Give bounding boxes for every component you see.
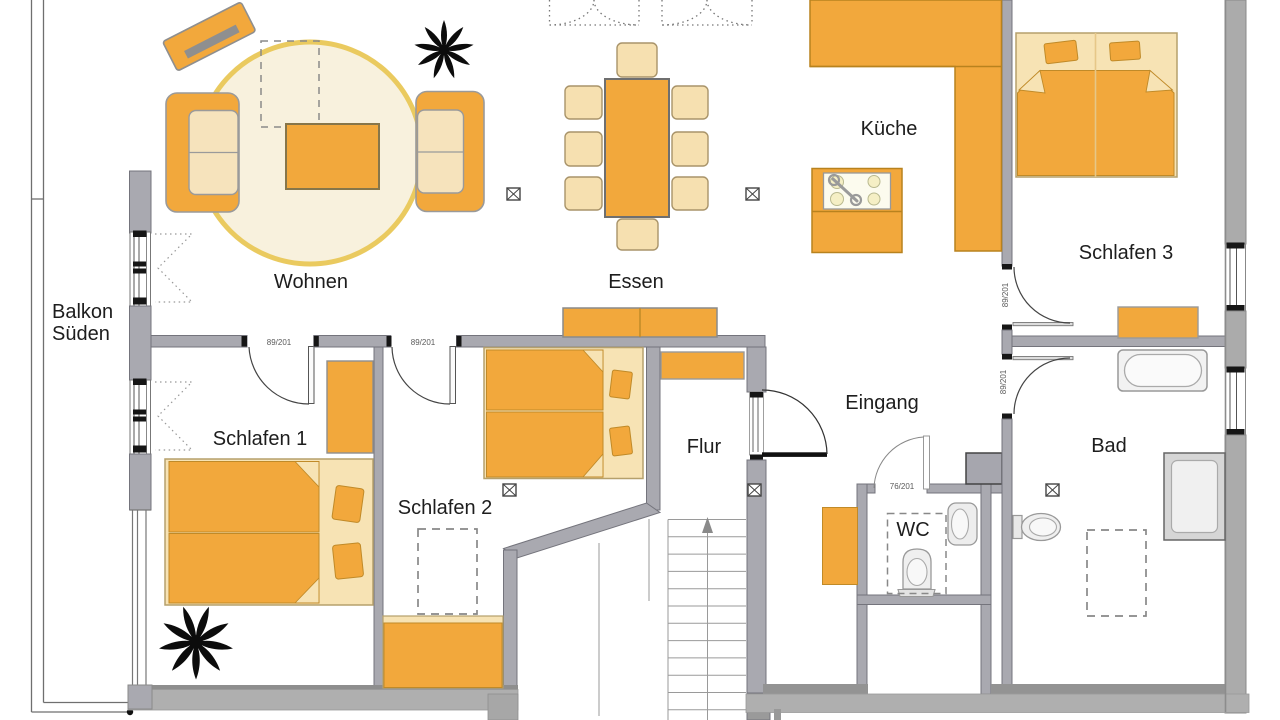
svg-text:Schlafen 1: Schlafen 1 [213, 428, 308, 450]
svg-text:Schlafen 3: Schlafen 3 [1079, 242, 1174, 264]
svg-text:Wohnen: Wohnen [274, 271, 348, 293]
svg-text:89/201: 89/201 [411, 338, 436, 347]
svg-text:Süden: Süden [52, 323, 110, 345]
svg-text:89/201: 89/201 [999, 369, 1008, 394]
svg-text:Balkon: Balkon [52, 301, 113, 323]
svg-text:Eingang: Eingang [845, 392, 918, 414]
svg-text:Bad: Bad [1091, 435, 1127, 457]
svg-text:Essen: Essen [608, 271, 664, 293]
svg-text:Küche: Küche [861, 118, 918, 140]
svg-text:Flur: Flur [687, 436, 722, 458]
svg-text:89/201: 89/201 [267, 338, 292, 347]
svg-text:WC: WC [896, 519, 929, 541]
svg-text:Schlafen 2: Schlafen 2 [398, 497, 493, 519]
svg-text:76/201: 76/201 [890, 482, 915, 491]
svg-text:89/201: 89/201 [1001, 282, 1010, 307]
